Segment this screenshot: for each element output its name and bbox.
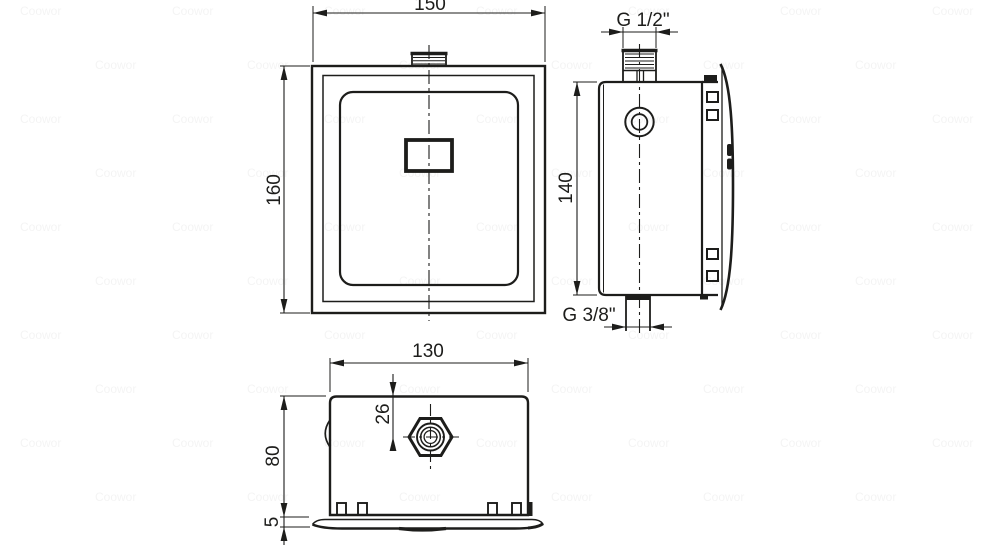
dim-label-front-height: 160 — [264, 174, 285, 206]
dimension-top-width: 130 — [330, 341, 528, 392]
arrow-up — [281, 527, 288, 541]
dim-label-front-width: 150 — [414, 0, 446, 15]
arrow-up — [281, 66, 288, 80]
arrow-down — [281, 299, 288, 313]
arrow-left — [650, 324, 664, 331]
dimension-side-height: 140 — [556, 82, 597, 295]
arrow-down — [574, 281, 581, 295]
technical-drawing-sheet: CooworCooworCooworCooworCooworCooworCoow… — [0, 0, 1000, 550]
outlet-stub-side — [626, 295, 650, 331]
arrow-right — [531, 10, 545, 17]
arrow-left — [313, 10, 327, 17]
dimension-inlet-thread: G 1/2" — [601, 10, 678, 48]
dim-label-plate-thickness: 5 — [262, 517, 283, 528]
gasket-top — [704, 75, 717, 82]
base-plate — [313, 520, 544, 531]
mounting-clip — [707, 110, 718, 120]
mounting-clip — [707, 92, 718, 102]
arrow-down — [281, 503, 288, 517]
drawing-canvas: 150 160 — [0, 0, 1000, 550]
dim-label-inlet-offset: 26 — [373, 403, 394, 424]
arrow-left — [330, 360, 344, 367]
edge-tab — [528, 502, 533, 516]
arrow-up — [281, 396, 288, 410]
arrow-up — [390, 437, 397, 451]
dim-label-inlet-thread: G 1/2" — [616, 10, 669, 31]
flange-catch — [727, 159, 732, 170]
dimension-body-depth: 80 — [263, 396, 326, 517]
arrow-right — [514, 360, 528, 367]
top-view — [313, 397, 544, 531]
mounting-clip — [707, 249, 718, 259]
dim-label-top-width: 130 — [412, 341, 444, 362]
flange-catch — [727, 144, 732, 156]
foot-tab — [358, 503, 367, 515]
foot-tab — [512, 503, 521, 515]
foot-tab — [337, 503, 346, 515]
dimension-inlet-offset: 26 — [373, 374, 396, 451]
mounting-clip — [707, 271, 718, 281]
foot-tab — [488, 503, 497, 515]
dimension-plate-thickness: 5 — [262, 517, 310, 545]
dim-label-outlet-thread: G 3/8" — [562, 305, 615, 326]
dim-label-side-height: 140 — [556, 172, 577, 204]
gasket-bottom — [700, 296, 708, 300]
side-view — [599, 44, 733, 334]
arrow-up — [574, 82, 581, 96]
dimension-front-height: 160 — [264, 66, 310, 313]
dim-label-body-depth: 80 — [263, 445, 284, 466]
dimension-outlet-thread: G 3/8" — [562, 305, 672, 330]
arrow-down — [390, 382, 397, 396]
front-view — [312, 45, 545, 321]
